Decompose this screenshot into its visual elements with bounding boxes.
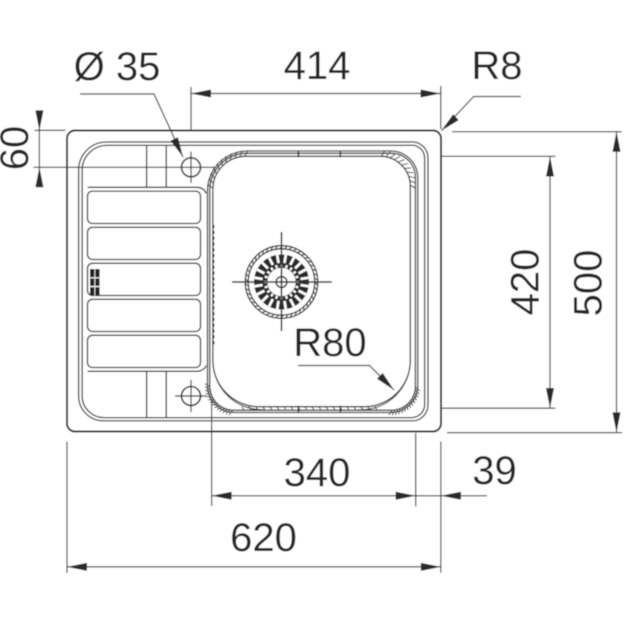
svg-text:60: 60 xyxy=(0,126,37,171)
svg-text:620: 620 xyxy=(230,516,297,560)
svg-text:414: 414 xyxy=(284,44,351,88)
svg-text:R80: R80 xyxy=(293,321,366,365)
svg-text:500: 500 xyxy=(567,250,611,317)
svg-text:420: 420 xyxy=(504,249,548,316)
svg-text:340: 340 xyxy=(284,451,351,495)
svg-text:R8: R8 xyxy=(471,44,522,88)
svg-text:Ø 35: Ø 35 xyxy=(74,45,161,89)
svg-text:39: 39 xyxy=(472,449,517,493)
